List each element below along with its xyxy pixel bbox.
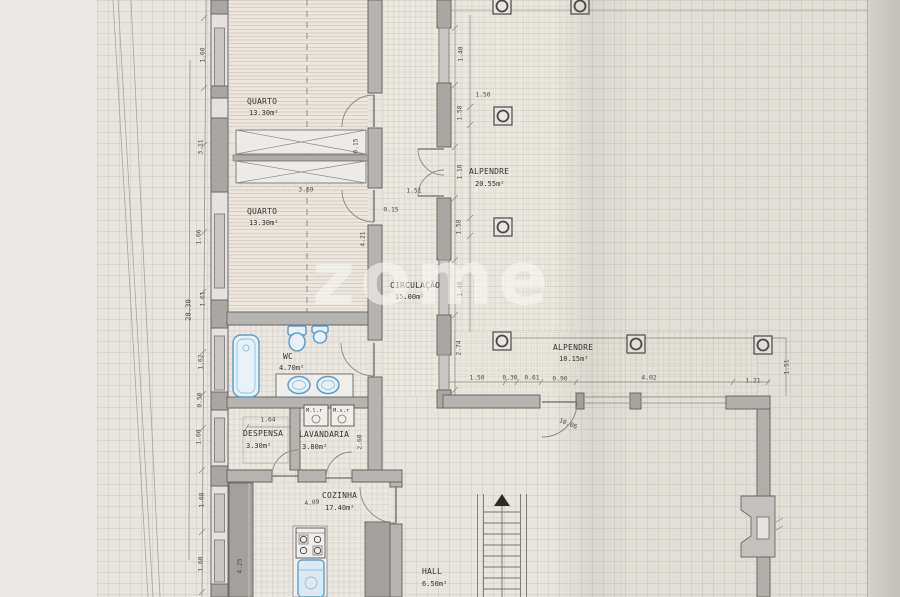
bathtub — [233, 335, 259, 397]
staircase — [478, 494, 527, 597]
kitchen-fixtures — [229, 483, 390, 597]
chimney — [741, 496, 783, 557]
door-cozinha — [360, 487, 396, 523]
stair-direction-arrow — [494, 494, 510, 506]
site-boundary-lines — [113, 0, 160, 597]
stove — [296, 528, 325, 558]
wardrobes — [233, 130, 368, 183]
south-and-east-walls — [443, 393, 770, 597]
door-quarto-1 — [342, 95, 374, 127]
floor-plan: QUARTO13.30m²QUARTO13.30m²WC4.70m²DESPEN… — [0, 0, 900, 597]
door-alpendre-2 — [542, 402, 577, 437]
kitchen-counter-right — [365, 522, 390, 597]
wc-fixtures — [233, 326, 353, 397]
refrigerator — [298, 560, 324, 597]
door-lavandaria — [326, 452, 352, 478]
toilet — [288, 326, 306, 351]
central-wall — [368, 0, 382, 482]
bidet — [312, 326, 328, 343]
page-edge — [867, 0, 900, 597]
dimension-ticks — [199, 15, 770, 595]
plan-drawing — [0, 0, 900, 597]
door-quarto-2 — [342, 190, 374, 222]
porch-columns — [493, 0, 772, 354]
dimension-lines — [189, 0, 786, 597]
corridor-east-wall — [437, 0, 451, 408]
door-wc — [341, 343, 374, 376]
double-door-alpendre — [418, 149, 444, 196]
left-exterior-wall — [211, 0, 228, 597]
washbasin-counter — [276, 374, 353, 397]
